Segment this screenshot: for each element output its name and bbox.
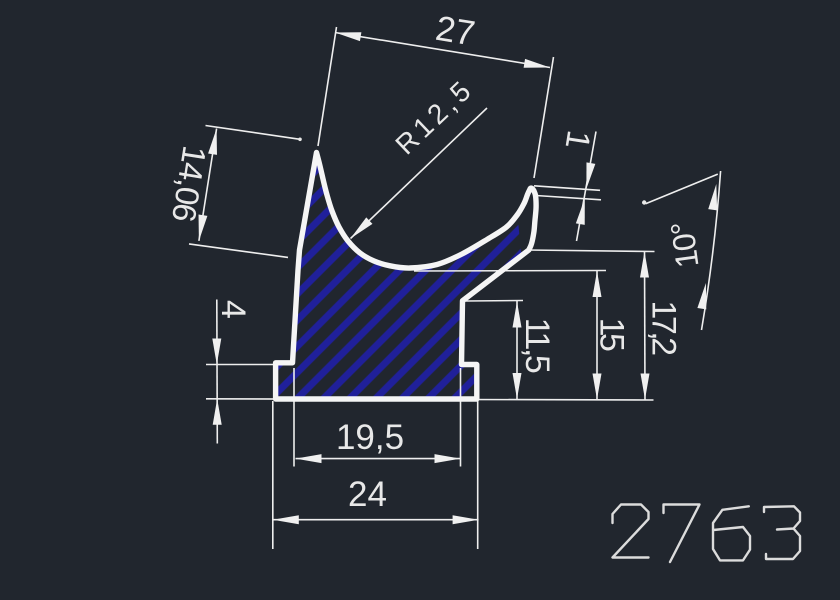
svg-text:10°: 10° [664, 220, 706, 270]
svg-text:24: 24 [348, 475, 387, 514]
svg-text:4: 4 [214, 300, 252, 319]
svg-text:17,2: 17,2 [645, 300, 683, 355]
svg-text:11,5: 11,5 [518, 318, 556, 373]
svg-text:15: 15 [593, 318, 631, 351]
svg-text:27: 27 [433, 9, 478, 54]
svg-text:19,5: 19,5 [336, 418, 404, 457]
